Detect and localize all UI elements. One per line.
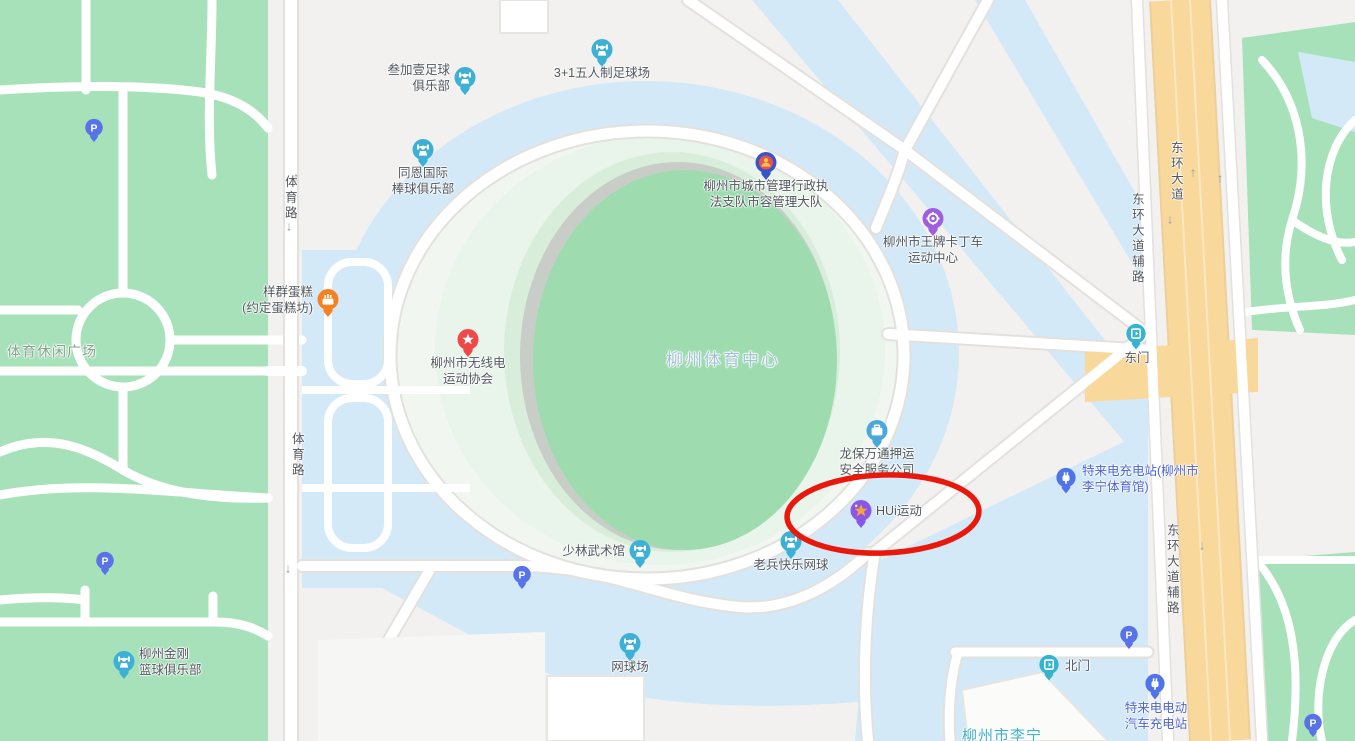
poi-label-teld-charging-lining: 特来电充电站(柳州市李宁体育馆) <box>1082 463 1199 496</box>
poi-label-tennis-court: 网球场 <box>611 659 649 675</box>
map-viewport[interactable]: 体育路体育路东环大道东环大道辅路东环大道辅路体育休闲广场柳州体育中心柳州市李宁 … <box>0 0 1355 741</box>
charging-pin-icon <box>1055 467 1077 500</box>
parking-pin-icon: P <box>1119 625 1139 655</box>
poi-label-sanjiayi-football-club: 叁加壹足球俱乐部 <box>387 62 450 95</box>
parking-pin-icon: P <box>84 118 104 148</box>
poi-label-teld-ev-charging: 特来电电动汽车充电站 <box>1125 700 1188 733</box>
stadium-field <box>533 170 837 550</box>
sports-pin-icon <box>453 66 477 101</box>
cake-pin-icon <box>316 288 340 323</box>
poi-label-laobing-tennis: 老兵快乐网球 <box>753 557 828 573</box>
svg-text:P: P <box>519 570 526 581</box>
sports-pin-icon <box>628 539 652 574</box>
parking-pin-icon: P <box>512 565 532 595</box>
parking-pin-icon: P <box>1303 713 1323 741</box>
sports-pin-icon <box>112 650 136 685</box>
poi-label-shaolin-martial-arts: 少林武术馆 <box>562 543 625 559</box>
svg-text:P: P <box>91 123 98 134</box>
poi-label-wangpai-karting-center: 柳州市王牌卡丁车运动中心 <box>883 234 983 267</box>
poi-label-yangqun-cake-shop: 样群蛋糕(约定蛋糕坊) <box>242 284 313 317</box>
svg-text:P: P <box>1126 630 1133 641</box>
poi-label-3plus1-football-field: 3+1五人制足球场 <box>554 65 650 81</box>
poi-label-east-gate: 东门 <box>1124 350 1149 366</box>
svg-text:P: P <box>1310 718 1317 729</box>
poi-label-radio-sports-association: 柳州市无线电运动协会 <box>430 355 505 388</box>
map-base-canvas <box>0 0 1355 741</box>
poi-label-north-gate: 北门 <box>1065 658 1090 674</box>
poi-label-hui-sports: HUi运动 <box>876 503 922 519</box>
poi-label-longbao-escort-company: 龙保万通押运安全服务公司 <box>839 446 914 479</box>
parking-pin-icon: P <box>95 551 115 581</box>
poi-label-jingang-basketball-club: 柳州金刚篮球俱乐部 <box>139 646 202 679</box>
poi-label-city-management-brigade: 柳州市城市管理行政执法支队市容管理大队 <box>703 178 828 211</box>
poi-label-tongen-baseball-club: 同恩国际棒球俱乐部 <box>392 165 455 198</box>
gate-pin-icon <box>1038 654 1060 687</box>
hui-pin-icon <box>849 499 873 534</box>
svg-text:P: P <box>102 556 109 567</box>
